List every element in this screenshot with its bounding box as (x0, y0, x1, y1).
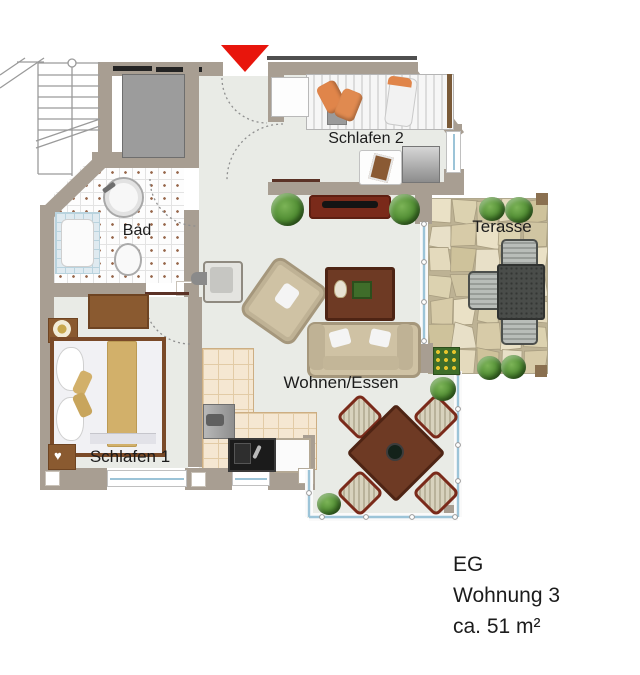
heart-icon: ♥ (54, 449, 68, 463)
table-center-bowl (386, 443, 404, 461)
toilet (114, 243, 142, 276)
nightstand (271, 77, 309, 117)
tv-icon (322, 201, 378, 208)
sink-basin (234, 443, 251, 464)
room-label-schlafen1: Schlafen 1 (90, 447, 170, 467)
plant (430, 377, 456, 401)
info-floor: EG (453, 549, 560, 580)
plant (317, 493, 341, 515)
dresser-desk (88, 294, 149, 329)
plan-info: EG Wohnung 3 ca. 51 m² (453, 549, 560, 642)
info-area: ca. 51 m² (453, 611, 560, 642)
floor-plan: ♥ Schlafen 2 Bad Terasse Schlafen 1 Wohn… (0, 0, 640, 675)
shower-tray (61, 219, 94, 267)
terrace-table (497, 264, 545, 320)
stove-handle (206, 414, 224, 426)
room-label-wohnen-essen: Wohnen/Essen (284, 373, 399, 393)
dresser-gray (402, 146, 440, 183)
hall-chair-seat (210, 267, 233, 293)
bed-schlafen1 (50, 337, 166, 457)
table-decor (334, 280, 347, 298)
room-label-terasse: Terasse (472, 217, 532, 237)
sofa-armrest (397, 324, 413, 370)
entrance-marker-icon (221, 45, 269, 72)
plant (501, 355, 526, 379)
stairs-icon (0, 58, 100, 176)
elevator-shaft (122, 74, 185, 158)
lamp-icon (53, 320, 71, 338)
room-label-bad: Bad (123, 222, 151, 240)
info-unit: Wohnung 3 (453, 580, 560, 611)
flower-box (433, 347, 460, 375)
bed-frame (447, 74, 452, 128)
plant (389, 194, 420, 225)
hall-chair-handle (191, 272, 207, 285)
room-label-schlafen2: Schlafen 2 (328, 130, 404, 148)
table-tray-plant (352, 281, 372, 299)
shower (55, 212, 100, 274)
duvet-fold (90, 433, 156, 444)
plant (477, 356, 502, 380)
sofa-back (323, 356, 399, 370)
plant (271, 193, 304, 226)
bed-runner (107, 341, 137, 447)
